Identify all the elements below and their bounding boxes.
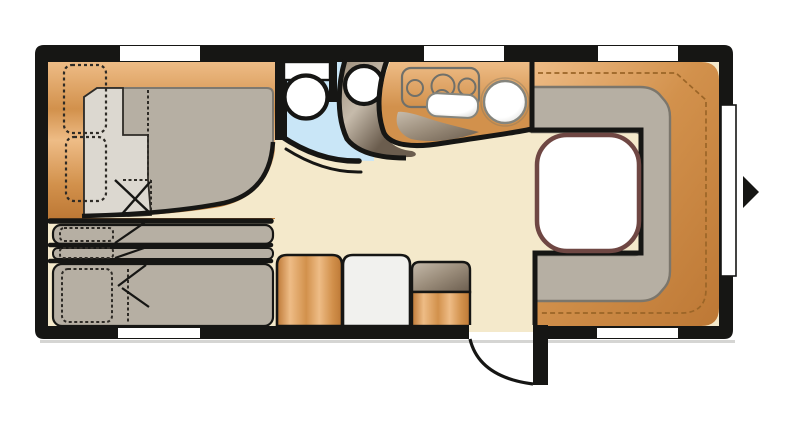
cabinet-row	[277, 255, 470, 326]
window-front-right	[598, 46, 678, 61]
kitchen	[379, 60, 532, 146]
dinette	[531, 59, 719, 328]
front-bedroom	[48, 62, 275, 219]
wall-shadow-bottom	[40, 340, 735, 343]
bathroom-divider-wall	[329, 58, 337, 102]
window-rear-left	[118, 328, 200, 338]
step-unit-top	[412, 262, 470, 292]
door-jamb-wall	[533, 325, 548, 385]
fridge-cabinet	[343, 255, 410, 326]
floorplan-image	[0, 0, 800, 445]
dinette-table	[537, 135, 639, 251]
step-unit-base	[412, 292, 470, 326]
window-front-left	[120, 46, 200, 61]
toilet-bowl	[285, 76, 328, 119]
window-rear-right	[597, 328, 678, 338]
window-side	[721, 105, 736, 276]
caravan-floorplan	[0, 0, 800, 445]
wardrobe-cabinet	[277, 255, 342, 326]
door-threshold	[469, 325, 534, 332]
bunk-beds	[50, 221, 273, 326]
round-basin	[484, 81, 526, 123]
kitchen-sink	[426, 93, 478, 119]
bunk-bed-bottom	[53, 264, 273, 326]
window-front-center	[424, 46, 504, 61]
